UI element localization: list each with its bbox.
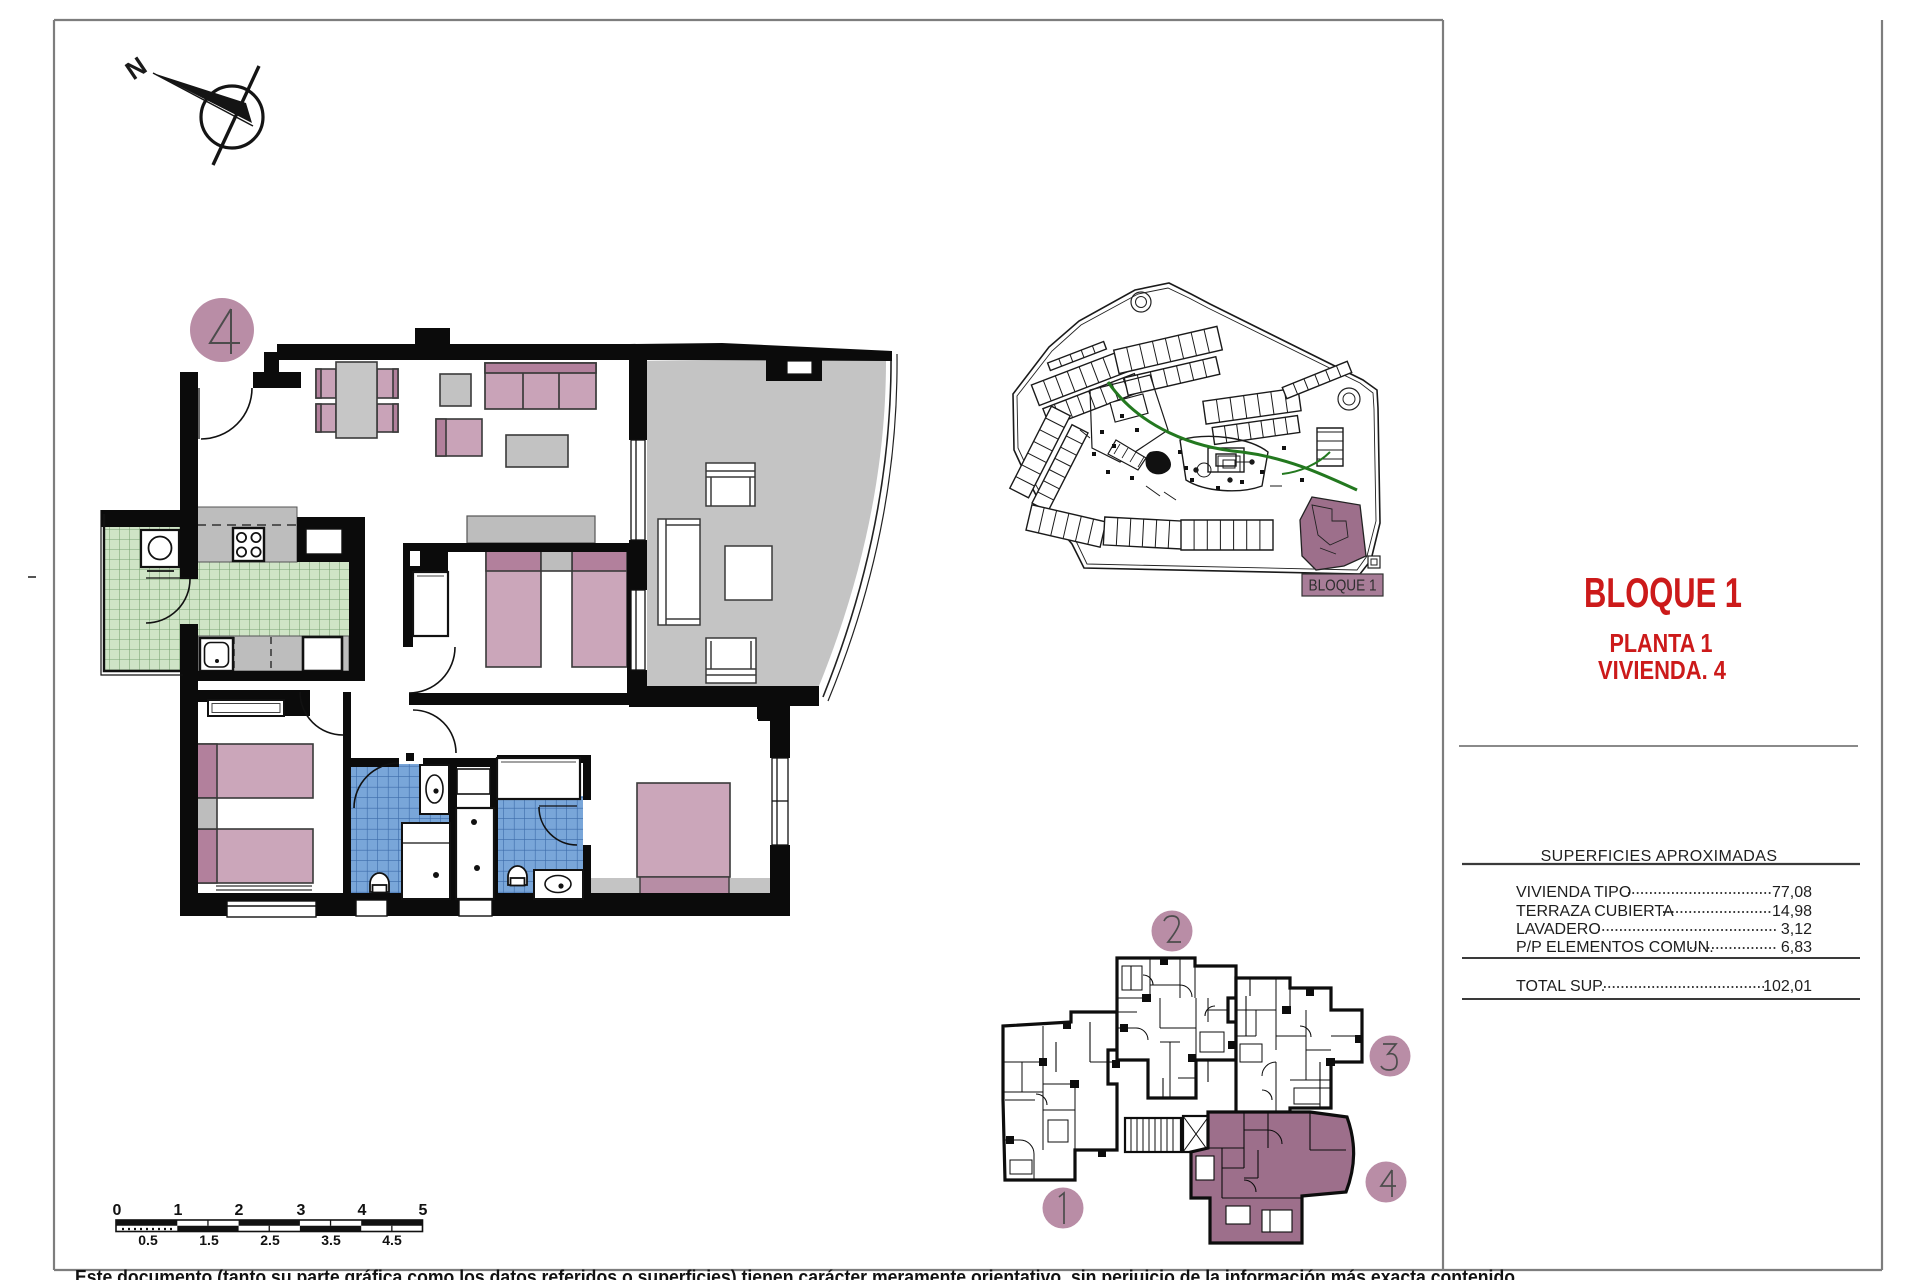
svg-text:6,83: 6,83 bbox=[1781, 939, 1812, 956]
svg-text:VIVIENDA TIPO: VIVIENDA TIPO bbox=[1516, 884, 1631, 901]
svg-text:BLOQUE 1: BLOQUE 1 bbox=[1309, 578, 1377, 595]
svg-text:102,01: 102,01 bbox=[1763, 978, 1812, 995]
svg-text:4: 4 bbox=[358, 1202, 367, 1219]
svg-text:1.5: 1.5 bbox=[199, 1232, 219, 1248]
svg-text:77,08: 77,08 bbox=[1772, 884, 1812, 901]
svg-text:0: 0 bbox=[113, 1202, 122, 1219]
svg-text:5: 5 bbox=[419, 1202, 428, 1219]
svg-text:3,12: 3,12 bbox=[1781, 921, 1812, 938]
svg-text:VIVIENDA. 4: VIVIENDA. 4 bbox=[1598, 655, 1726, 685]
svg-text:1: 1 bbox=[174, 1202, 183, 1219]
svg-text:LAVADERO: LAVADERO bbox=[1516, 921, 1601, 938]
svg-text:Este documento (tanto su parte: Este documento (tanto su parte gráfica c… bbox=[75, 1267, 1515, 1280]
svg-text:P/P ELEMENTOS COMUN.: P/P ELEMENTOS COMUN. bbox=[1516, 939, 1714, 956]
svg-text:2.5: 2.5 bbox=[260, 1232, 280, 1248]
svg-text:2: 2 bbox=[235, 1202, 244, 1219]
svg-text:TERRAZA CUBIERTA: TERRAZA CUBIERTA bbox=[1516, 903, 1674, 920]
svg-text:TOTAL SUP.: TOTAL SUP. bbox=[1516, 978, 1605, 995]
svg-text:SUPERFICIES APROXIMADAS: SUPERFICIES APROXIMADAS bbox=[1541, 848, 1778, 865]
svg-text:BLOQUE 1: BLOQUE 1 bbox=[1584, 569, 1742, 616]
svg-text:3: 3 bbox=[297, 1202, 306, 1219]
svg-text:14,98: 14,98 bbox=[1772, 903, 1812, 920]
svg-text:3.5: 3.5 bbox=[321, 1232, 341, 1248]
svg-text:4.5: 4.5 bbox=[382, 1232, 402, 1248]
svg-text:PLANTA 1: PLANTA 1 bbox=[1610, 628, 1713, 658]
svg-text:0.5: 0.5 bbox=[138, 1232, 158, 1248]
